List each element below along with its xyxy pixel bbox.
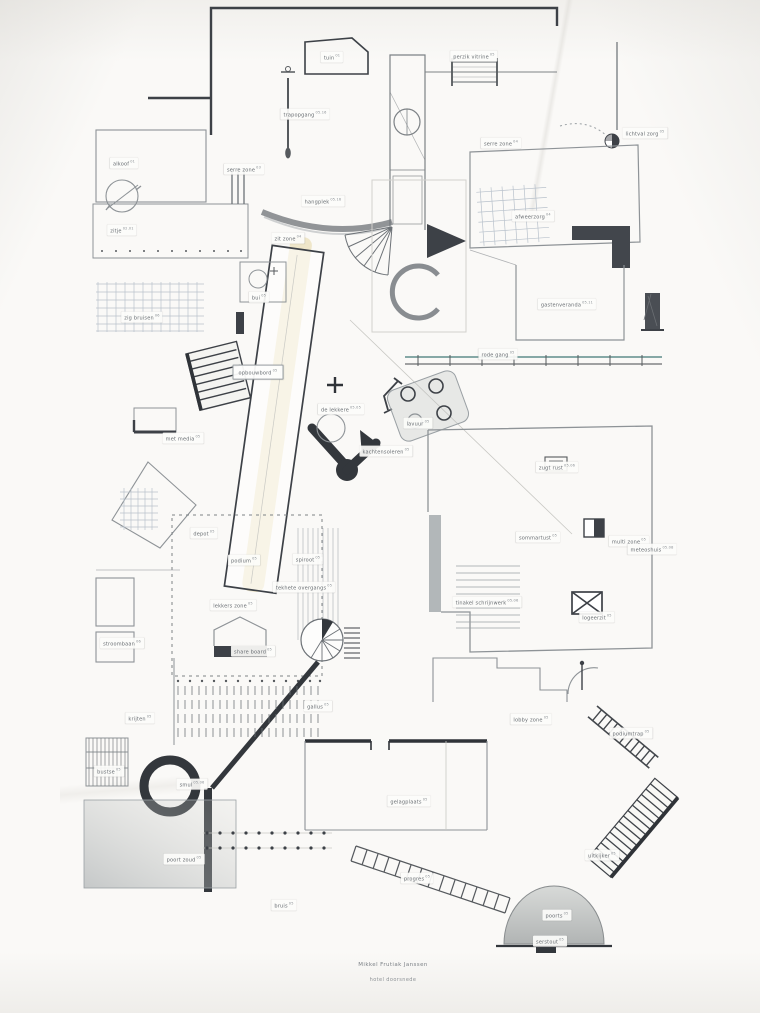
dark-bracket-wall [572, 226, 630, 268]
caption-subtitle: hotel doorsnede [370, 977, 417, 983]
plan-linework [0, 0, 760, 1013]
plus-mark [327, 377, 343, 393]
flag-arc [568, 661, 598, 694]
gastenveranda-room [470, 250, 624, 340]
dark-column [641, 293, 664, 330]
grid-hatch-zone [96, 282, 204, 332]
faint-diagonal [350, 320, 572, 534]
zitje-room [93, 204, 248, 258]
fan-stair [345, 227, 392, 275]
perzik-vitrine-box [425, 58, 557, 86]
dark-diagonal-wall [212, 662, 318, 788]
caption-author: Mikkel Frutiak Janssen [358, 962, 428, 968]
faint-room-outline [372, 180, 466, 332]
gelagplaats-room [305, 741, 487, 830]
half-dark-square-icon [584, 519, 604, 537]
spiral-stair [301, 619, 360, 661]
met-media-hut [134, 408, 176, 432]
tuin-pavilion [305, 38, 368, 74]
zitje-dot-row [101, 250, 242, 252]
round-table [317, 414, 345, 442]
right-big-room [428, 426, 652, 652]
lichtval-pole [560, 42, 619, 148]
kite-room [112, 462, 196, 548]
triple-strokes [232, 168, 244, 204]
tilted-deck-panel [588, 778, 678, 877]
tick-rows [174, 658, 318, 745]
dome-pavilion [496, 886, 612, 953]
lined-block [456, 566, 520, 628]
podiumtrap-stair [588, 706, 658, 768]
section-pole-icon [281, 67, 295, 159]
dark-arrow-wedge [427, 224, 466, 258]
shutter-panel [186, 341, 250, 410]
stroombaan-rooms [96, 570, 180, 662]
x-box-icon [572, 592, 602, 614]
c-ring [392, 266, 438, 318]
lobby-outline [433, 658, 567, 702]
mini-dark-bar [236, 312, 244, 334]
striped-stack [86, 738, 128, 786]
hatched-walkway [351, 846, 510, 913]
dark-machine-shape [312, 428, 381, 481]
gray-wash-court [84, 800, 236, 888]
rode-gang-corridor [405, 355, 662, 366]
stair-tower [390, 55, 425, 230]
gable-house [214, 617, 267, 657]
alkoof-room [96, 130, 206, 212]
photographed-plan-drawing: tuin01trapopgang05.16alkoof01zitje02.01s… [0, 0, 760, 1013]
zugt-rust-icon [545, 457, 567, 471]
